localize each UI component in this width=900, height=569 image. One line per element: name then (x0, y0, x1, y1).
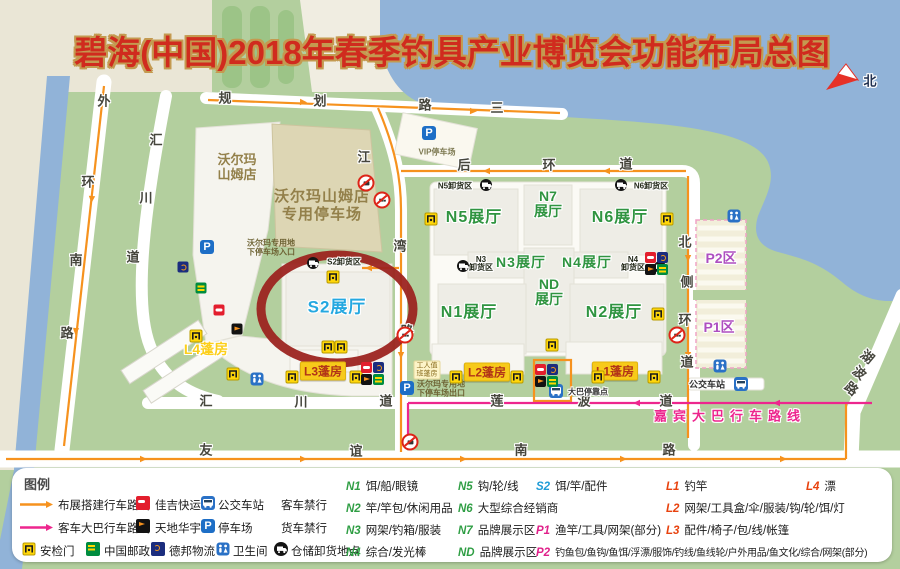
legend-area-l4: L4漂 (806, 478, 836, 494)
legend-bus-label: 公交车站 (218, 497, 264, 513)
restroom-icon (728, 210, 741, 223)
logistics-cluster (535, 364, 558, 387)
jiaji-express-icon (645, 252, 656, 263)
security-gate-icon (190, 330, 203, 343)
bus-station-icon (201, 496, 215, 510)
legend-area-l2: L2网架/工具盒/伞/服装/钩/轮/饵/灯 (666, 500, 845, 516)
china-post-icon (547, 376, 558, 387)
road-label-char: 莲 (490, 391, 503, 410)
area-desc: 网架/钓箱/服装 (366, 525, 441, 537)
bus-station-label: 公交车站 (689, 378, 725, 391)
road-label-char: 路 (418, 95, 431, 114)
road-label-char: 环 (81, 172, 94, 191)
china-post-icon (373, 374, 384, 385)
deppon-logistics-icon (178, 262, 189, 273)
legend-area-n4: N4综合/发光棒 (346, 544, 426, 560)
deppon-logistics-icon (547, 364, 558, 375)
legend-area-nd: ND品牌展示区 (458, 544, 537, 560)
walmart-store-label: 沃尔玛 山姆店 (217, 152, 256, 182)
restroom-icon (217, 543, 230, 556)
tiandi-huayu-icon (232, 324, 243, 335)
hall-label-n2: N2展厅 (586, 298, 642, 322)
p-glyph: P (425, 127, 432, 139)
road-label-char: 友 (199, 440, 212, 459)
unload-n4-line2: 卸货区 (621, 264, 645, 272)
area-desc: 饵/竿/配件 (555, 481, 607, 493)
area-code: N4 (346, 547, 361, 559)
legend-area-n6: N6大型综合经销商 (458, 500, 558, 516)
parking-icon: P (422, 126, 436, 140)
walmart-lot-line1: 沃尔玛山姆店 (274, 188, 370, 206)
area-desc: 钓鱼包/鱼钩/鱼饵/浮漂/服饰/钓线/鱼线轮/户外用品/鱼文化/综合/网架(部分… (555, 548, 867, 559)
legend-notruck-label: 货车禁行 (281, 520, 327, 536)
security-gate-icon (322, 341, 335, 354)
unload-label-n6: N6卸货区 (634, 181, 668, 192)
road-label-char: 道 (680, 352, 693, 371)
entrance-line2: 下停车场入口 (247, 248, 295, 257)
unload-label-n4: N4 卸货区 (621, 256, 645, 272)
zone-label-p1: P1区 (703, 317, 734, 337)
road-label-char: 后 (457, 155, 470, 174)
legend-area-l3: L3配件/椅子/包/线/帐篷 (666, 522, 789, 538)
area-code: L1 (666, 481, 679, 493)
road-label-char: 江 (357, 147, 370, 166)
restroom-icon (251, 373, 264, 386)
no-truck-sign (397, 327, 414, 344)
road-label-char: 外 (97, 91, 110, 110)
warehouse-unloading-icon (274, 542, 288, 556)
hall-label-n5: N5展厅 (446, 203, 502, 227)
tent-label-l3: L3蓬房 (300, 362, 346, 381)
deppon-logistics-icon (151, 542, 165, 556)
china-post-icon (196, 283, 207, 294)
map-title: 碧海(中国)2018年春季钓具产业博览会功能布局总图 (74, 26, 829, 74)
area-desc: 网架/工具盒/伞/服装/钩/轮/饵/灯 (684, 503, 844, 515)
area-desc: 综合/发光棒 (366, 547, 427, 559)
parking-icon: P (400, 381, 414, 395)
hall-label-n3: N3展厅 (496, 252, 546, 272)
deppon-logistics-icon (657, 252, 668, 263)
area-code: N6 (458, 503, 473, 515)
unload-n3-line2: 卸货区 (469, 264, 493, 272)
vip-parking-label: VIP停车场 (419, 147, 456, 158)
area-desc: 钩/轮/线 (478, 481, 519, 493)
hall-label-n7: N7 展厅 (534, 189, 562, 219)
construction-route-sample (20, 500, 54, 509)
area-desc: 大型综合经销商 (478, 503, 559, 515)
area-desc: 钓竿 (684, 481, 707, 493)
area-code: S2 (536, 481, 550, 493)
p-glyph: P (403, 382, 410, 394)
security-gate-icon (652, 308, 665, 321)
jiaji-express-icon (136, 496, 150, 510)
zone-label-p2: P2区 (705, 248, 736, 268)
road-label-char: 环 (542, 155, 555, 174)
tiandi-huayu-icon (361, 374, 372, 385)
walmart-lot-line2: 专用停车场 (274, 206, 370, 224)
hall-label-n7-line1: N7 (534, 189, 562, 204)
unload-label-s2: S2卸货区 (327, 257, 361, 268)
guest-route-sample (20, 523, 54, 532)
walmart-store-line1: 沃尔玛 (217, 152, 256, 167)
road-label-char: 三 (490, 98, 503, 117)
area-code: P1 (536, 525, 550, 537)
security-gate-icon (227, 368, 240, 381)
bus-station-icon (734, 377, 748, 391)
road-label-char: 川 (294, 392, 307, 411)
hall-label-n6: N6展厅 (592, 203, 648, 227)
hall-label-n1: N1展厅 (441, 298, 497, 322)
area-code: L3 (666, 525, 679, 537)
area-desc: 竿/竿包/休闲用品 (366, 503, 453, 515)
road-label-char: 湾 (393, 236, 406, 255)
hall-label-n7-line2: 展厅 (534, 204, 562, 219)
road-label-char: 南 (69, 250, 82, 269)
road-label-char: 路 (662, 440, 675, 459)
road-label-char: 道 (379, 391, 392, 410)
deppon-logistics-icon (373, 362, 384, 373)
guest-bus-route-label: 嘉宾大巴行车路线 (654, 406, 806, 425)
security-gate-icon (511, 371, 524, 384)
legend-area-l1: L1钓竿 (666, 478, 707, 494)
hall-label-s2: S2展厅 (308, 293, 367, 318)
hall-label-nd: ND 展厅 (535, 277, 563, 307)
jiaji-express-icon (535, 364, 546, 375)
legend-title: 图例 (24, 474, 50, 493)
bus-stop-label: 大巴停靠点 (568, 387, 608, 398)
walmart-store-line2: 山姆店 (217, 167, 256, 182)
security-gate-icon (450, 371, 463, 384)
area-desc: 漂 (824, 481, 836, 493)
security-gate-icon (23, 543, 36, 556)
expo-layout-map: 碧海(中国)2018年春季钓具产业博览会功能布局总图 北 规 划 路 三 外 环… (0, 0, 900, 569)
legend-wc-label: 卫生间 (233, 543, 268, 559)
road-label-char: 汇 (199, 391, 212, 410)
legend-area-n2: N2竿/竿包/休闲用品 (346, 500, 453, 516)
road-label-char: 谊 (349, 441, 362, 460)
legend-parking-label: 停车场 (218, 520, 253, 536)
legend-area-n5: N5钩/轮/线 (458, 478, 519, 494)
road-label-char: 环 (678, 310, 691, 329)
tiandi-huayu-icon (645, 264, 656, 275)
jiaji-express-icon (361, 362, 372, 373)
road-label-char: 规 (218, 88, 231, 107)
security-gate-icon (592, 371, 605, 384)
parking-icon: P (200, 240, 214, 254)
unload-label-n5: N5卸货区 (438, 181, 472, 192)
road-label-char: 划 (313, 91, 326, 110)
legend-area-n7: N7品牌展示区 (458, 522, 535, 538)
security-gate-icon (425, 213, 438, 226)
security-gate-icon (327, 271, 340, 284)
no-bus-sign (358, 175, 375, 192)
security-gate-icon (286, 371, 299, 384)
hall-label-nd-line2: 展厅 (535, 292, 563, 307)
tent-label-l2: L2蓬房 (464, 363, 510, 382)
unload-label-n3: N3 卸货区 (469, 256, 493, 272)
legend-huayu-label: 天地华宇 (155, 520, 201, 536)
walmart-garage-entrance-label: 沃尔玛专用地 下停车场入口 (247, 240, 295, 257)
area-code: N3 (346, 525, 361, 537)
road-label-char: 北 (678, 232, 691, 251)
area-code: L4 (806, 481, 819, 493)
unloading-truck-icon (457, 260, 469, 272)
area-code: N1 (346, 481, 361, 493)
unloading-truck-icon (480, 179, 492, 191)
tiandi-huayu-icon (535, 376, 546, 387)
legend-post-label: 中国邮政 (104, 543, 150, 559)
area-code: N7 (458, 525, 473, 537)
area-desc: 品牌展示区 (478, 525, 536, 537)
parking-icon: P (201, 519, 215, 533)
unloading-truck-icon (615, 179, 627, 191)
worker-tent-line1: 工人值 (417, 363, 438, 371)
area-desc: 渔竿/工具/网架(部分) (555, 525, 661, 537)
north-label: 北 (863, 71, 876, 90)
security-gate-icon (335, 341, 348, 354)
worker-tent-label: 工人值 班蓬房 (414, 361, 441, 380)
security-gate-icon (661, 213, 674, 226)
legend-area-s2: S2饵/竿/配件 (536, 478, 607, 494)
legend-deppon-label: 德邦物流 (169, 543, 215, 559)
p-parking-strip (693, 220, 749, 368)
hall-label-n4: N4展厅 (562, 252, 612, 272)
hall-label-nd-line1: ND (535, 277, 563, 292)
area-code: ND (458, 547, 475, 559)
road-label-char: 侧 (680, 272, 693, 291)
legend-area-p1: P1渔竿/工具/网架(部分) (536, 522, 661, 538)
area-code: N2 (346, 503, 361, 515)
area-desc: 配件/椅子/包/线/帐篷 (684, 525, 789, 537)
legend-area-p2: P2钓鱼包/鱼钩/鱼饵/浮漂/服饰/钓线/鱼线轮/户外用品/鱼文化/综合/网架(… (536, 544, 867, 559)
tiandi-huayu-icon (136, 519, 150, 533)
road-label-char: 道 (126, 247, 139, 266)
exit-line2: 下停车场出口 (417, 389, 465, 398)
worker-tent-line2: 班蓬房 (417, 370, 438, 378)
unloading-truck-icon (307, 257, 319, 269)
china-post-icon (86, 542, 100, 556)
restroom-icon (714, 360, 727, 373)
area-code: L2 (666, 503, 679, 515)
legend-area-n3: N3网架/钓箱/服装 (346, 522, 441, 538)
road-label-char: 南 (514, 440, 527, 459)
road-label-char: 川 (139, 188, 152, 207)
road-label-char: 汇 (149, 130, 162, 149)
area-desc: 饵/船/眼镜 (366, 481, 418, 493)
road-label-char: 路 (60, 323, 73, 342)
security-gate-icon (546, 339, 559, 352)
legend-jiaji-label: 佳吉快运 (155, 497, 201, 513)
area-code: P2 (536, 547, 550, 559)
road-label-char: 道 (619, 154, 632, 173)
legend-area-n1: N1饵/船/眼镜 (346, 478, 418, 494)
no-truck-sign (374, 192, 391, 209)
p-glyph: P (203, 241, 210, 253)
area-desc: 品牌展示区 (480, 547, 538, 559)
security-gate-icon (648, 371, 661, 384)
walmart-lot-label: 沃尔玛山姆店 专用停车场 (274, 188, 370, 224)
logistics-cluster (645, 252, 668, 275)
legend-gate-label: 安检门 (40, 543, 75, 559)
area-code: N5 (458, 481, 473, 493)
p-glyph: P (204, 520, 211, 532)
no-bus-sign (402, 434, 419, 451)
china-post-icon (657, 264, 668, 275)
legend-nobus-label: 客车禁行 (281, 497, 327, 513)
no-truck-sign (669, 327, 686, 344)
jiaji-express-icon (214, 305, 225, 316)
logistics-cluster (361, 362, 384, 385)
